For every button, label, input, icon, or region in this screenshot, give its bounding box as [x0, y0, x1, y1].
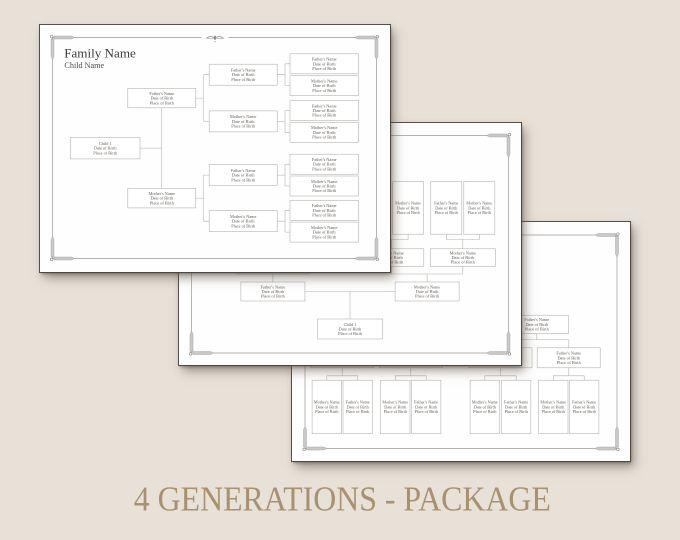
svg-text:Place of Birth: Place of Birth — [312, 212, 337, 217]
svg-text:Place of Birth: Place of Birth — [415, 409, 439, 414]
svg-text:Place of Birth: Place of Birth — [312, 66, 337, 71]
svg-text:Child Name: Child Name — [64, 61, 104, 70]
svg-text:Place of Birth: Place of Birth — [231, 76, 256, 81]
svg-text:Place of Birth: Place of Birth — [312, 112, 337, 117]
svg-text:Place of Birth: Place of Birth — [149, 100, 174, 105]
svg-text:Family Name: Family Name — [64, 45, 136, 60]
svg-text:Place of Birth: Place of Birth — [231, 223, 256, 228]
svg-text:Place of Birth: Place of Birth — [384, 409, 408, 414]
svg-text:Place of Birth: Place of Birth — [312, 87, 337, 92]
svg-text:Place of Birth: Place of Birth — [231, 123, 256, 128]
svg-text:Place of Birth: Place of Birth — [525, 326, 550, 331]
svg-text:Place of Birth: Place of Birth — [149, 200, 174, 205]
svg-text:Place of Birth: Place of Birth — [542, 409, 566, 414]
svg-text:4 GENERATIONS - PACKAGE: 4 GENERATIONS - PACKAGE — [134, 480, 551, 519]
svg-text:Place of Birth: Place of Birth — [312, 188, 337, 193]
svg-text:Place of Birth: Place of Birth — [315, 409, 339, 414]
svg-text:Place of Birth: Place of Birth — [557, 360, 582, 365]
svg-text:Place of Birth: Place of Birth — [434, 210, 458, 215]
svg-text:Place of Birth: Place of Birth — [473, 409, 497, 414]
svg-text:Place of Birth: Place of Birth — [338, 331, 363, 336]
svg-text:Place of Birth: Place of Birth — [505, 409, 529, 414]
svg-text:Place of Birth: Place of Birth — [396, 210, 420, 215]
svg-text:Place of Birth: Place of Birth — [573, 409, 597, 414]
svg-text:Place of Birth: Place of Birth — [260, 293, 285, 298]
svg-text:Place of Birth: Place of Birth — [93, 150, 118, 155]
svg-text:Place of Birth: Place of Birth — [312, 134, 337, 139]
svg-text:Place of Birth: Place of Birth — [415, 293, 440, 298]
svg-text:Place of Birth: Place of Birth — [312, 234, 337, 239]
svg-text:Place of Birth: Place of Birth — [312, 166, 337, 171]
svg-text:Place of Birth: Place of Birth — [467, 210, 491, 215]
svg-text:Place of Birth: Place of Birth — [231, 177, 256, 182]
svg-text:Place of Birth: Place of Birth — [346, 409, 370, 414]
svg-text:Place of Birth: Place of Birth — [450, 259, 475, 264]
